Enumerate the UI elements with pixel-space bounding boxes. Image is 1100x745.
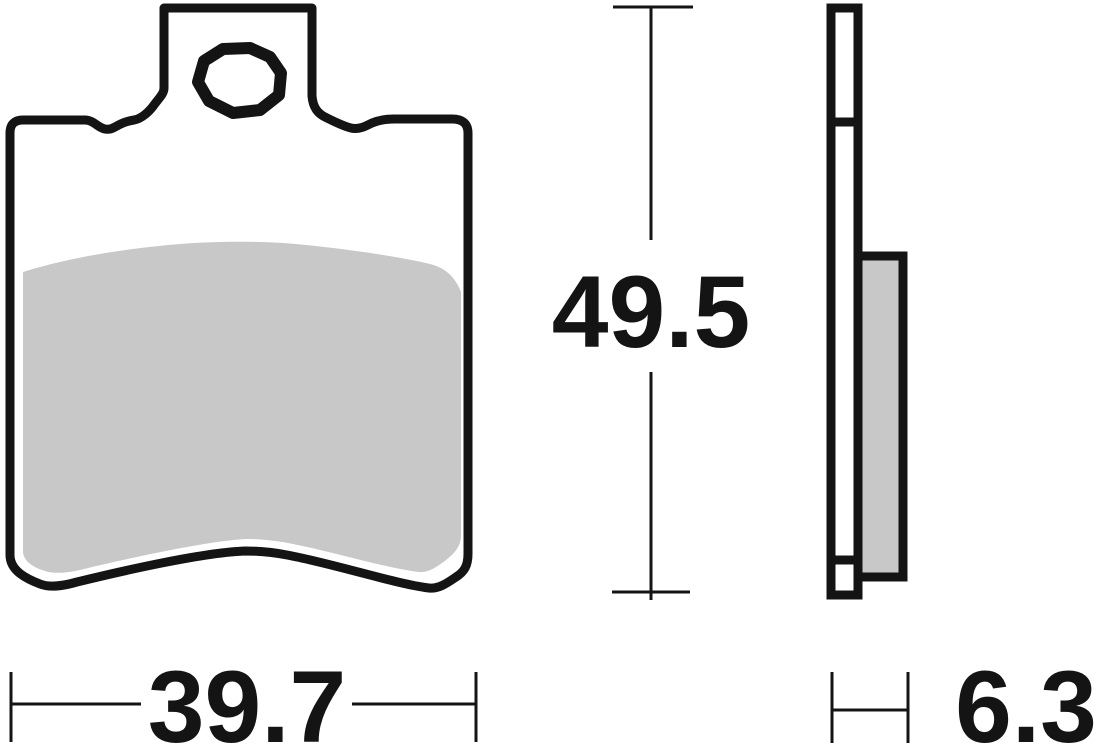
mounting-hole bbox=[198, 48, 281, 113]
side-friction-material bbox=[858, 256, 903, 577]
front-friction-material bbox=[23, 242, 461, 573]
side-backing-plate bbox=[831, 8, 858, 595]
thickness-dimension: 6.3 bbox=[832, 650, 1097, 745]
side-view bbox=[827, 8, 903, 595]
drawing-stage: 49.5 39.7 6.3 bbox=[0, 0, 1100, 745]
thickness-dimension-label: 6.3 bbox=[955, 650, 1097, 745]
height-dimension: 49.5 bbox=[552, 7, 751, 600]
front-view bbox=[10, 8, 468, 588]
height-dimension-label: 49.5 bbox=[552, 255, 751, 369]
thickness-dimension-lines bbox=[832, 672, 908, 743]
technical-drawing-canvas: 49.5 39.7 6.3 bbox=[0, 0, 1100, 745]
width-dimension: 39.7 bbox=[11, 650, 476, 745]
width-dimension-label: 39.7 bbox=[148, 650, 347, 745]
